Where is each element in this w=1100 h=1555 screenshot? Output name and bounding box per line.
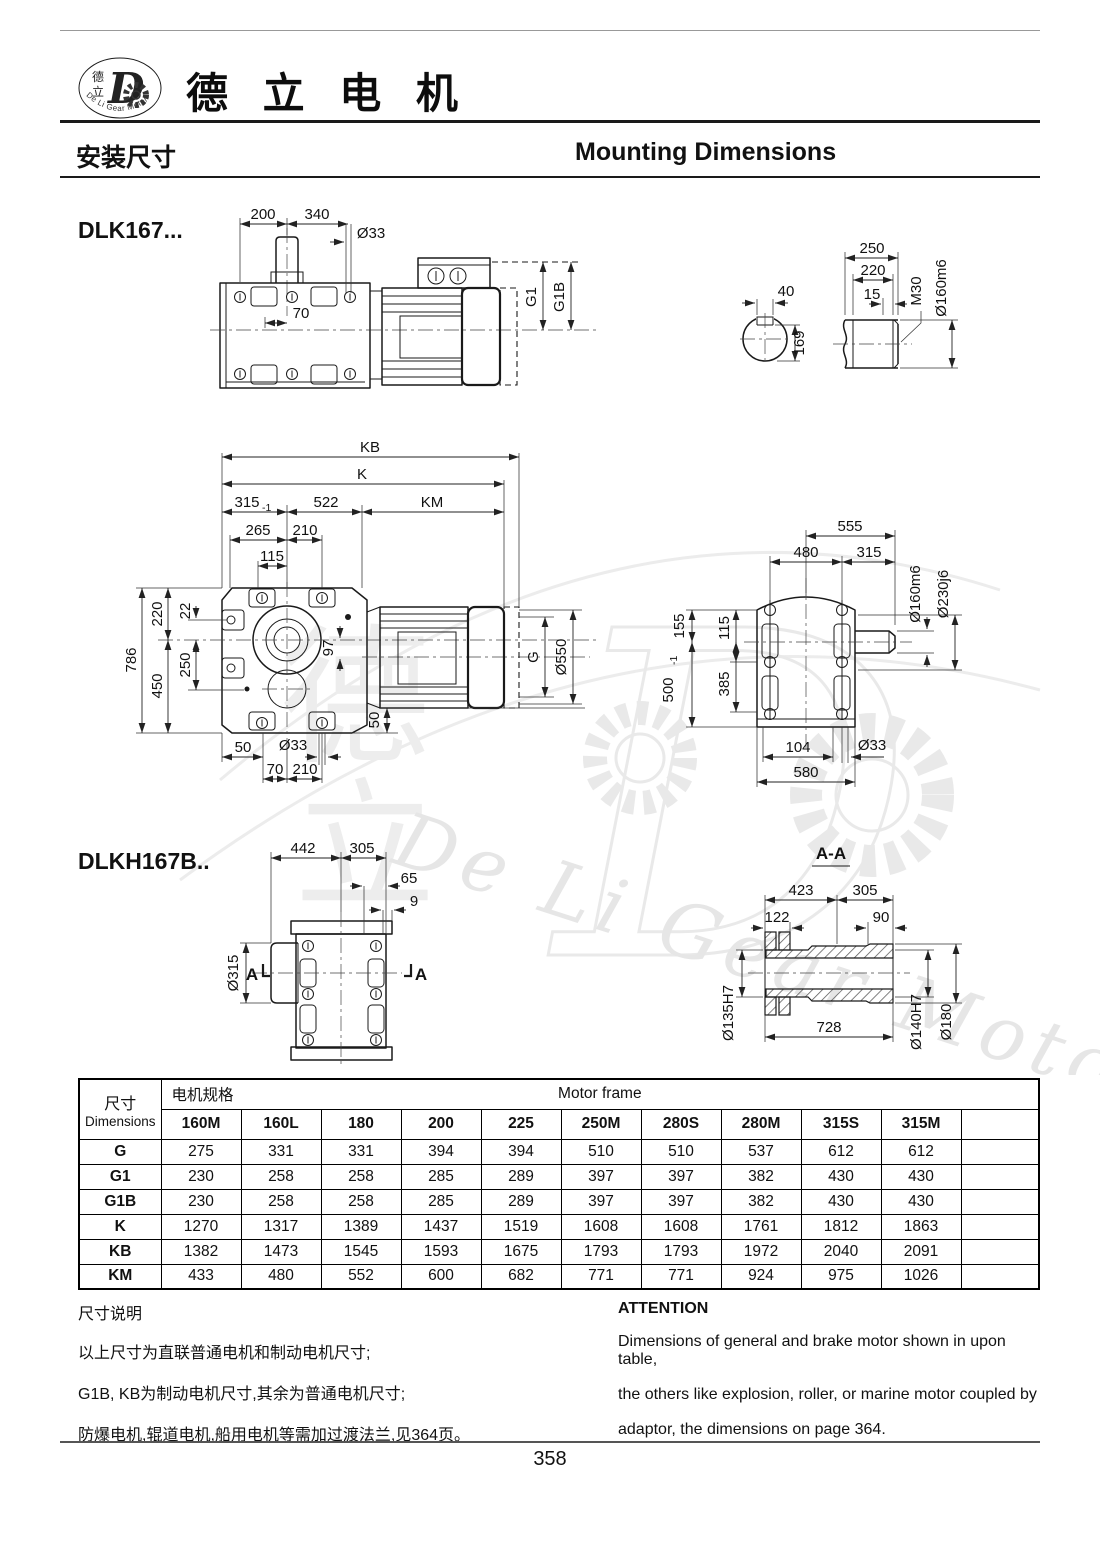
table-cell: 1761: [721, 1214, 801, 1239]
dim-tolerance: -1: [668, 656, 680, 665]
column-header: 250M: [561, 1109, 641, 1139]
dim-label: 50: [366, 712, 383, 729]
dim-label: 9: [410, 893, 418, 910]
table-cell: 612: [801, 1139, 881, 1164]
dim-label: Ø160m6: [907, 565, 924, 623]
dim-label: Ø140H7: [908, 994, 925, 1050]
table-cell: 1793: [641, 1239, 721, 1264]
dim-label: Ø230j6: [935, 570, 952, 618]
company-name: 德 立 电 机: [186, 60, 468, 121]
table-cell: 1317: [241, 1214, 321, 1239]
table-cell: 1793: [561, 1239, 641, 1264]
row-label: G: [79, 1139, 161, 1164]
column-header: 315S: [801, 1109, 881, 1139]
catalog-page: D 德 立 De Li Gear Motor 德 立 电 机 安装尺寸 Moun…: [0, 0, 1100, 1555]
table-cell: 430: [881, 1189, 961, 1214]
dim-label: 580: [793, 764, 818, 781]
table-cell-empty: [961, 1239, 1039, 1264]
table-cell: 1270: [161, 1214, 241, 1239]
table-cell: 258: [241, 1189, 321, 1214]
notes-en-line: Dimensions of general and brake motor sh…: [618, 1333, 1048, 1369]
dim-label: 115: [716, 616, 733, 640]
technical-drawings: D 德 立 De Li Gear Motor DLK167...: [0, 185, 1100, 1075]
dim-label: G1B: [551, 282, 568, 312]
dimensions-table: 尺寸 Dimensions 电机规格 Motor frame 160M 160L…: [78, 1078, 1040, 1290]
dim-label: 90: [873, 909, 890, 926]
dim-label: 220: [860, 262, 885, 279]
notes-zh: 尺寸说明 以上尺寸为直联普通电机和制动电机尺寸; G1B, KB为制动电机尺寸,…: [78, 1300, 598, 1462]
table-cell: 1593: [401, 1239, 481, 1264]
table-cell: 1519: [481, 1214, 561, 1239]
table-cell: 289: [481, 1189, 561, 1214]
dim-label: 155: [671, 613, 688, 638]
table-cell: 289: [481, 1164, 561, 1189]
dim-label: 265: [245, 522, 270, 539]
dim-label: 210: [292, 522, 317, 539]
column-header: 315M: [881, 1109, 961, 1139]
row-label: KM: [79, 1264, 161, 1289]
table-cell: 430: [801, 1164, 881, 1189]
dim-label: 50: [235, 739, 252, 756]
table-cell-empty: [961, 1214, 1039, 1239]
section-title-zh: 安装尺寸: [76, 138, 176, 174]
column-header: 160M: [161, 1109, 241, 1139]
dlk167-shaft-detail: 40 169 250 220 15: [740, 240, 958, 368]
watermark: D 德 立 De Li Gear Motor: [180, 538, 1100, 1075]
table-cell: 258: [321, 1164, 401, 1189]
notes-zh-title: 尺寸说明: [78, 1300, 598, 1324]
table-row: KM 4334805526006827717719249751026: [79, 1264, 1039, 1289]
table-cell: 230: [161, 1164, 241, 1189]
table-row: G 275331331394394510510537612612: [79, 1139, 1039, 1164]
table-cell: 1608: [641, 1214, 721, 1239]
table-cell-empty: [961, 1264, 1039, 1289]
notes-en: ATTENTION Dimensions of general and brak…: [618, 1300, 1048, 1456]
table-cell: 1545: [321, 1239, 401, 1264]
table-group-header: 电机规格 Motor frame: [161, 1079, 1039, 1109]
table-cell: 394: [401, 1139, 481, 1164]
table-row: G1 230258258285289397397382430430: [79, 1164, 1039, 1189]
table-cell: 258: [321, 1189, 401, 1214]
column-header: 200: [401, 1109, 481, 1139]
table-cell-empty: [961, 1164, 1039, 1189]
dim-label: 115: [260, 548, 284, 565]
dim-label: 500: [660, 677, 677, 702]
table-cell: 975: [801, 1264, 881, 1289]
dim-label: Ø135H7: [720, 985, 737, 1041]
table-cell: 331: [321, 1139, 401, 1164]
dim-label: 340: [304, 206, 329, 223]
group-label-en: Motor frame: [558, 1085, 642, 1102]
row-label: K: [79, 1214, 161, 1239]
top-hairline: [60, 30, 1040, 31]
dim-label: 480: [793, 544, 818, 561]
table-cell: 275: [161, 1139, 241, 1164]
table-cell: 600: [401, 1264, 481, 1289]
notes-zh-line: 以上尺寸为直联普通电机和制动电机尺寸;: [78, 1339, 598, 1363]
table-row: KB 1382147315451593167517931793197220402…: [79, 1239, 1039, 1264]
dim-label: 169: [791, 330, 808, 355]
model1-label: DLK167...: [78, 217, 183, 243]
dim-label: K: [357, 466, 367, 483]
footer-rule: [60, 1441, 1040, 1443]
table-cell: 1972: [721, 1239, 801, 1264]
dim-label: Ø160m6: [933, 259, 950, 317]
dim-label: Ø33: [279, 737, 307, 754]
dim-label: 315: [234, 494, 259, 511]
table-cell: 771: [641, 1264, 721, 1289]
dim-label: 450: [149, 673, 166, 698]
table-cell: 2040: [801, 1239, 881, 1264]
table-cell: 331: [241, 1139, 321, 1164]
table-cell: 1675: [481, 1239, 561, 1264]
row-label: KB: [79, 1239, 161, 1264]
table-cell: 682: [481, 1264, 561, 1289]
dim-label: 40: [778, 283, 795, 300]
table-cell: 285: [401, 1164, 481, 1189]
table-cell-empty: [961, 1189, 1039, 1214]
table-cell: 924: [721, 1264, 801, 1289]
table-cell: 510: [641, 1139, 721, 1164]
dim-label: 250: [859, 240, 884, 257]
section-mark-label: A: [415, 965, 427, 984]
table-cell: 382: [721, 1164, 801, 1189]
dim-label: 522: [313, 494, 338, 511]
table-cell: 382: [721, 1189, 801, 1214]
section-title: A-A: [816, 844, 846, 863]
column-header: 280S: [641, 1109, 721, 1139]
dim-label: 305: [349, 840, 374, 857]
dim-label: 200: [250, 206, 275, 223]
table-cell: 552: [321, 1264, 401, 1289]
dim-label: 786: [123, 647, 140, 672]
column-header-empty: [961, 1109, 1039, 1139]
model2-label: DLKH167B..: [78, 848, 210, 874]
dim-label: 22: [177, 603, 194, 620]
dim-label: 728: [816, 1019, 841, 1036]
notes-zh-line: G1B, KB为制动电机尺寸,其余为普通电机尺寸;: [78, 1380, 598, 1404]
dim-label: 97: [320, 640, 337, 657]
table-cell: 1437: [401, 1214, 481, 1239]
table-cell: 1389: [321, 1214, 401, 1239]
group-label-zh: 电机规格: [172, 1083, 234, 1105]
table-cell: 537: [721, 1139, 801, 1164]
table-cell: 1812: [801, 1214, 881, 1239]
table-cell: 1382: [161, 1239, 241, 1264]
dim-label: Ø180: [938, 1004, 955, 1041]
dim-label: M30: [908, 276, 925, 305]
dim-label: 442: [290, 840, 315, 857]
dim-label: 555: [837, 518, 862, 535]
table-cell: 2091: [881, 1239, 961, 1264]
table-cell: 230: [161, 1189, 241, 1214]
dim-label: 305: [852, 882, 877, 899]
table-cell-empty: [961, 1139, 1039, 1164]
table-column-header-row: 160M 160L 180 200 225 250M 280S 280M 315…: [79, 1109, 1039, 1139]
logo-char-1: 德: [92, 69, 104, 84]
dim-label: G1: [523, 287, 540, 307]
corner-label-en: Dimensions: [80, 1114, 161, 1129]
column-header: 180: [321, 1109, 401, 1139]
row-label: G1: [79, 1164, 161, 1189]
dim-label: 423: [788, 882, 813, 899]
dim-label: 220: [149, 601, 166, 626]
dim-label: 104: [785, 739, 810, 756]
table-cell: 258: [241, 1164, 321, 1189]
dim-label: 65: [401, 870, 418, 887]
table-row: K 12701317138914371519160816081761181218…: [79, 1214, 1039, 1239]
dim-label: Ø33: [357, 225, 385, 242]
dim-label: KB: [360, 439, 380, 456]
table-cell: 430: [881, 1164, 961, 1189]
table-row: G1B 230258258285289397397382430430: [79, 1189, 1039, 1214]
dim-tolerance: -1: [262, 502, 271, 514]
corner-label-zh: 尺寸: [80, 1090, 161, 1114]
notes-en-line: the others like explosion, roller, or ma…: [618, 1386, 1048, 1404]
table-cell: 1863: [881, 1214, 961, 1239]
table-corner: 尺寸 Dimensions: [79, 1079, 161, 1139]
dim-label: G: [525, 651, 542, 663]
dim-label: 70: [267, 761, 284, 778]
notes-en-line: adaptor, the dimensions on page 364.: [618, 1421, 1048, 1439]
dim-label: Ø315: [225, 955, 242, 992]
dim-label: 15: [864, 286, 881, 303]
table-cell: 1026: [881, 1264, 961, 1289]
table-cell: 1608: [561, 1214, 641, 1239]
dim-label: Ø550: [553, 639, 570, 676]
section-rule: [60, 176, 1040, 178]
column-header: 280M: [721, 1109, 801, 1139]
table-cell: 397: [561, 1164, 641, 1189]
column-header: 160L: [241, 1109, 321, 1139]
dim-label: KM: [421, 494, 444, 511]
table-cell: 397: [561, 1189, 641, 1214]
dim-label: 385: [716, 671, 733, 696]
table-cell: 480: [241, 1264, 321, 1289]
table-cell: 285: [401, 1189, 481, 1214]
watermark-char: 德: [280, 612, 430, 786]
column-header: 225: [481, 1109, 561, 1139]
page-number: 358: [0, 1448, 1100, 1471]
section-title-en: Mounting Dimensions: [575, 138, 836, 167]
table-cell: 430: [801, 1189, 881, 1214]
dlk167-top-view: 200 340 Ø33 70 G1 G1B: [210, 206, 600, 388]
dim-label: 70: [293, 305, 310, 322]
table-cell: 397: [641, 1189, 721, 1214]
table-cell: 433: [161, 1264, 241, 1289]
section-mark-label: A: [246, 965, 258, 984]
dim-label: 250: [177, 652, 194, 677]
notes-en-title: ATTENTION: [618, 1300, 1048, 1318]
row-label: G1B: [79, 1189, 161, 1214]
table-cell: 1473: [241, 1239, 321, 1264]
table-cell: 394: [481, 1139, 561, 1164]
header-rule: [60, 120, 1040, 123]
dim-label: 210: [292, 761, 317, 778]
dim-label: 315: [856, 544, 881, 561]
table-cell: 510: [561, 1139, 641, 1164]
table-cell: 771: [561, 1264, 641, 1289]
table-cell: 397: [641, 1164, 721, 1189]
dim-label: 122: [764, 909, 789, 926]
table-cell: 612: [881, 1139, 961, 1164]
dim-label: Ø33: [858, 737, 886, 754]
